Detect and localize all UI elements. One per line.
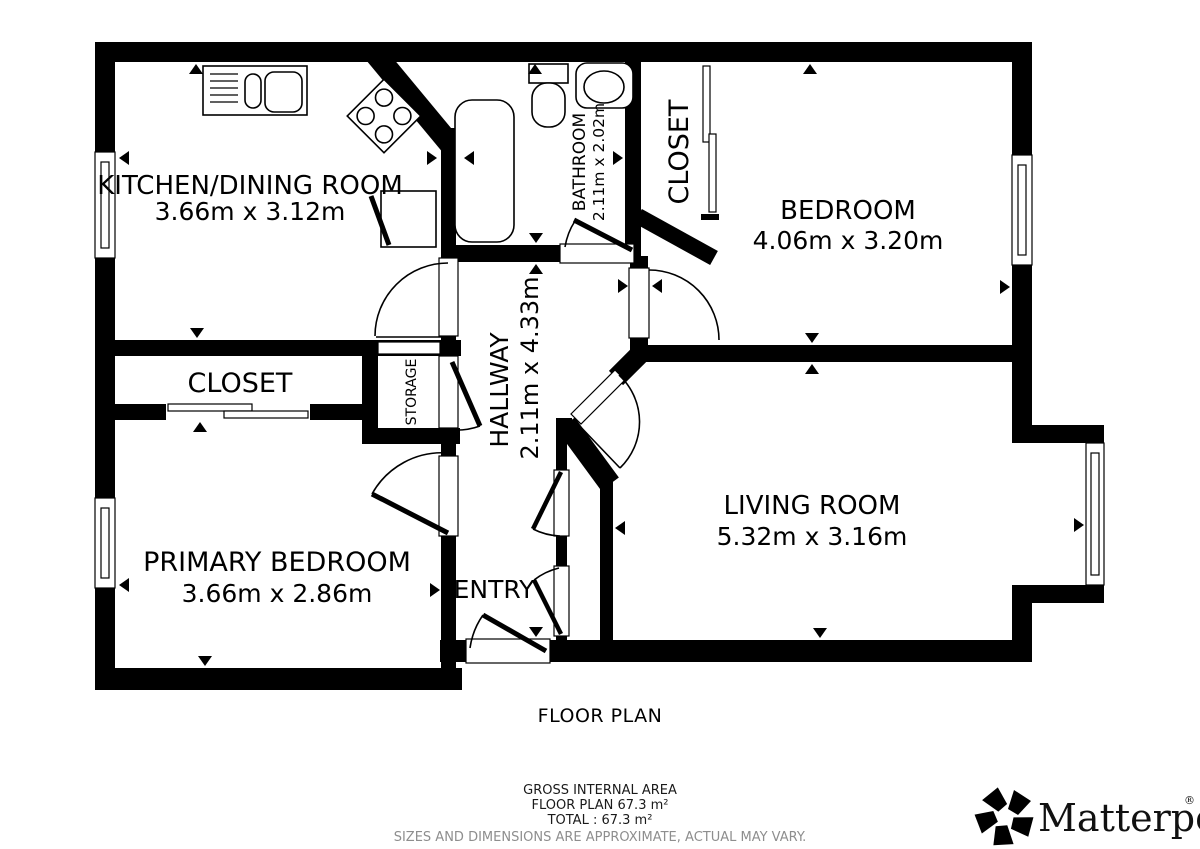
room-label-storage: STORAGE [404,359,420,426]
brand-name: Matterport [1038,796,1200,840]
room-label-entry: ENTRY [454,575,536,604]
kitchen-sink-counter [203,66,307,115]
matterport-pinwheel-icon [968,784,1039,849]
room-dims-living-room: 5.32m x 3.16m [717,522,908,551]
room-label-living-room: LIVING ROOM [724,491,901,521]
kitchen-window [94,152,116,258]
plan-title: FLOOR PLAN [538,705,663,727]
footer-area-total: TOTAL : 67.3 m² [547,813,653,828]
closet-left-sliding-door [166,402,310,422]
closet-top-sliding-door [701,62,719,214]
footer-disclaimer: SIZES AND DIMENSIONS ARE APPROXIMATE, AC… [394,830,807,845]
bathroom-sink [576,63,633,108]
room-label-bedroom: BEDROOM [780,196,916,226]
room-dims-primary-bedroom: 3.66m x 2.86m [182,579,373,608]
footer-area-heading: GROSS INTERNAL AREA [523,783,677,798]
floor-plan-page: KITCHEN/DINING ROOM 3.66m x 3.12m BATHRO… [0,0,1200,849]
room-dims-bedroom: 4.06m x 3.20m [753,226,944,255]
footer: GROSS INTERNAL AREA FLOOR PLAN 67.3 m² T… [394,783,807,845]
floor-plan-canvas: KITCHEN/DINING ROOM 3.66m x 3.12m BATHRO… [0,0,1200,849]
footer-area-floor: FLOOR PLAN 67.3 m² [532,798,669,813]
primary-bedroom-door [372,453,448,533]
primary-bedroom-window [94,498,116,588]
room-label-bathroom: BATHROOM [570,113,590,211]
living-room-bay-window [1085,443,1105,585]
bathtub [455,100,514,242]
room-label-hallway: HALLWAY [485,332,514,448]
room-label-closet-top: CLOSET [664,99,695,204]
room-dims-kitchen: 3.66m x 3.12m [155,197,346,226]
room-dims-hallway: 2.11m x 4.33m [516,276,544,459]
room-dims-bathroom: 2.11m x 2.02m [590,103,608,221]
brand-logo: Matterport ® [968,784,1200,849]
kitchen-door [375,263,448,337]
bedroom-window [1011,155,1033,265]
bedroom-door [649,270,719,340]
brand-registered-mark: ® [1184,794,1195,807]
room-label-closet-left: CLOSET [188,368,293,399]
room-label-primary-bedroom: PRIMARY BEDROOM [143,547,411,578]
